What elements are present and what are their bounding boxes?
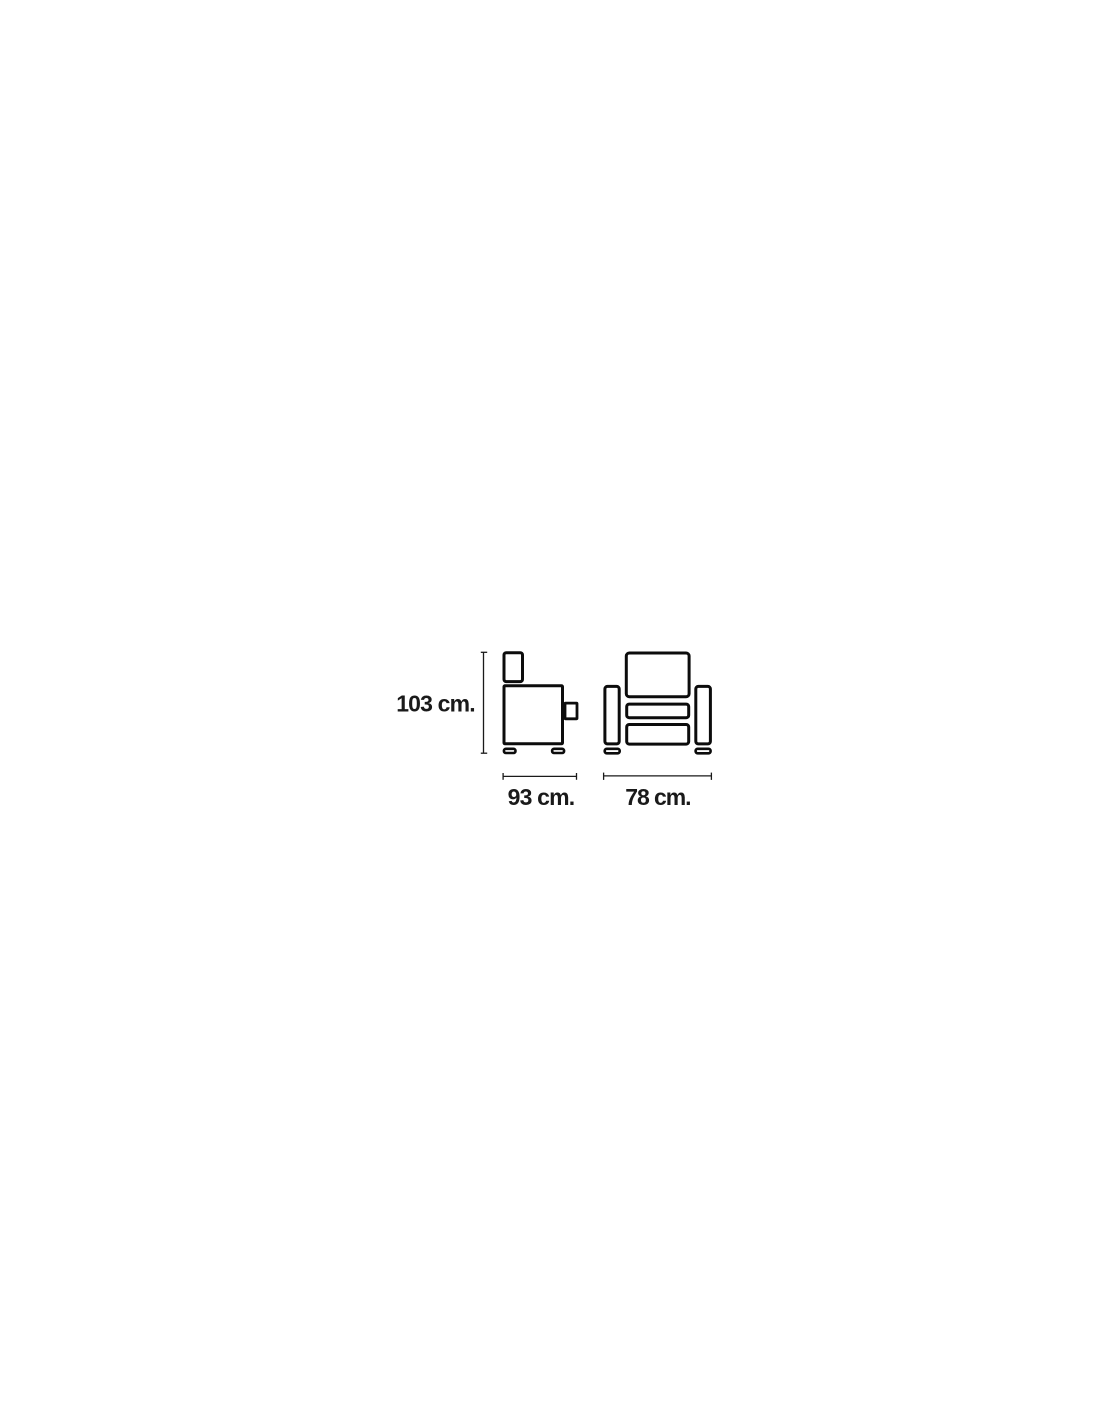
svg-text:78 cm.: 78 cm. xyxy=(625,784,691,810)
svg-text:103 cm.: 103 cm. xyxy=(396,690,475,716)
svg-text:93 cm.: 93 cm. xyxy=(508,784,576,810)
